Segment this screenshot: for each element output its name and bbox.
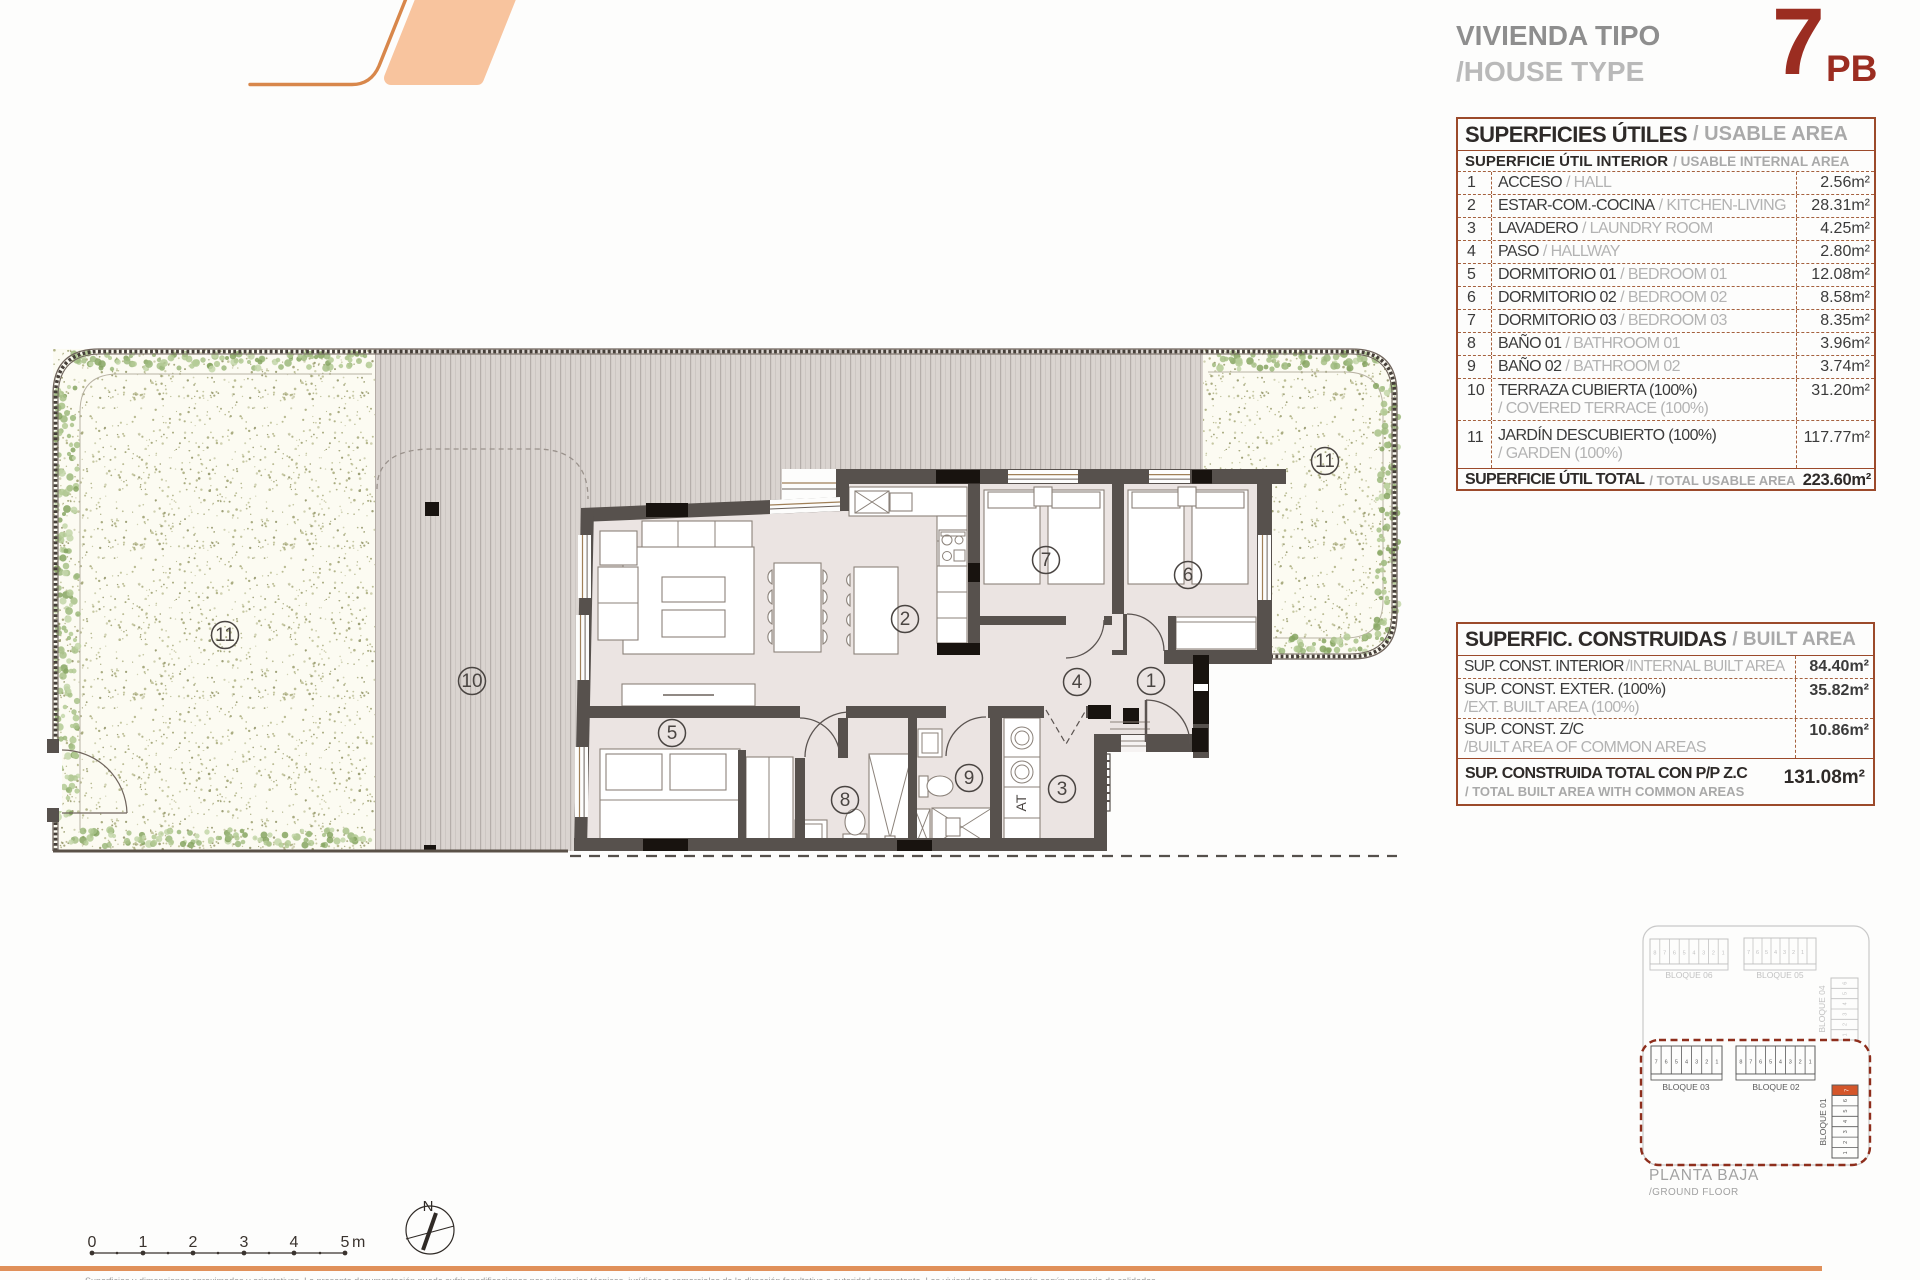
svg-text:4: 4: [1779, 1059, 1782, 1065]
svg-text:10: 10: [461, 671, 482, 692]
svg-text:5: 5: [1683, 951, 1686, 957]
svg-text:8: 8: [840, 790, 851, 811]
svg-text:m: m: [352, 1234, 365, 1251]
svg-text:3: 3: [1057, 779, 1068, 800]
svg-text:1: 1: [139, 1234, 148, 1251]
svg-text:5: 5: [341, 1234, 350, 1251]
svg-text:5: 5: [1769, 1059, 1772, 1065]
svg-text:3: 3: [1843, 1130, 1849, 1133]
svg-text:1: 1: [1801, 950, 1804, 956]
svg-text:2: 2: [1799, 1059, 1802, 1065]
svg-text:6: 6: [1665, 1059, 1668, 1065]
svg-text:2: 2: [1843, 1141, 1849, 1144]
svg-text:7: 7: [1655, 1059, 1658, 1065]
svg-text:2: 2: [189, 1234, 198, 1251]
svg-text:1: 1: [1722, 951, 1725, 957]
svg-text:6: 6: [1756, 950, 1759, 956]
svg-text:2: 2: [900, 609, 911, 630]
svg-text:3: 3: [1789, 1059, 1792, 1065]
svg-text:6: 6: [1843, 982, 1849, 985]
svg-text:/GROUND FLOOR: /GROUND FLOOR: [1649, 1187, 1739, 1198]
svg-text:BLOQUE 02: BLOQUE 02: [1752, 1082, 1800, 1092]
svg-text:11: 11: [1315, 451, 1335, 472]
svg-text:BLOQUE 04: BLOQUE 04: [1817, 985, 1827, 1033]
svg-text:8: 8: [1653, 951, 1656, 957]
svg-text:8: 8: [1739, 1059, 1742, 1065]
svg-text:7: 7: [1747, 950, 1750, 956]
svg-text:7: 7: [1041, 550, 1052, 571]
svg-text:BLOQUE 01: BLOQUE 01: [1818, 1098, 1828, 1146]
svg-text:3: 3: [1695, 1059, 1698, 1065]
svg-text:7: 7: [1844, 1089, 1850, 1092]
svg-text:1: 1: [1809, 1059, 1812, 1065]
svg-text:N: N: [423, 1198, 434, 1215]
svg-text:5: 5: [667, 723, 678, 744]
svg-text:6: 6: [1759, 1059, 1762, 1065]
svg-text:1: 1: [1843, 1151, 1849, 1154]
svg-text:1: 1: [1715, 1059, 1718, 1065]
svg-text:1: 1: [1146, 671, 1157, 692]
svg-text:BLOQUE 06: BLOQUE 06: [1665, 970, 1713, 980]
svg-text:5: 5: [1675, 1059, 1678, 1065]
svg-text:6: 6: [1673, 951, 1676, 957]
svg-text:4: 4: [1843, 1120, 1849, 1123]
svg-text:7: 7: [1749, 1059, 1752, 1065]
svg-text:7: 7: [1663, 951, 1666, 957]
svg-text:4: 4: [1843, 1002, 1849, 1005]
svg-text:3: 3: [1843, 1013, 1849, 1016]
svg-text:11: 11: [215, 625, 235, 646]
svg-text:BLOQUE 03: BLOQUE 03: [1662, 1082, 1710, 1092]
svg-text:4: 4: [1072, 672, 1083, 693]
svg-text:1: 1: [1843, 1033, 1849, 1036]
svg-text:PLANTA BAJA: PLANTA BAJA: [1649, 1167, 1759, 1184]
svg-text:4: 4: [290, 1234, 299, 1251]
svg-text:0: 0: [88, 1234, 97, 1251]
svg-text:5: 5: [1843, 1110, 1849, 1113]
svg-text:5: 5: [1843, 992, 1849, 995]
svg-text:5: 5: [1765, 950, 1768, 956]
svg-text:9: 9: [964, 768, 975, 789]
svg-text:3: 3: [1702, 951, 1705, 957]
svg-text:2: 2: [1705, 1059, 1708, 1065]
svg-text:6: 6: [1183, 565, 1194, 586]
svg-text:4: 4: [1692, 951, 1695, 957]
svg-text:6: 6: [1843, 1099, 1849, 1102]
svg-text:4: 4: [1774, 950, 1777, 956]
svg-text:2: 2: [1712, 951, 1715, 957]
svg-text:4: 4: [1685, 1059, 1688, 1065]
svg-text:3: 3: [240, 1234, 249, 1251]
svg-text:2: 2: [1843, 1023, 1849, 1026]
svg-text:AT: AT: [1013, 794, 1029, 811]
svg-text:BLOQUE 05: BLOQUE 05: [1756, 970, 1804, 980]
svg-text:2: 2: [1792, 950, 1795, 956]
svg-text:3: 3: [1783, 950, 1786, 956]
